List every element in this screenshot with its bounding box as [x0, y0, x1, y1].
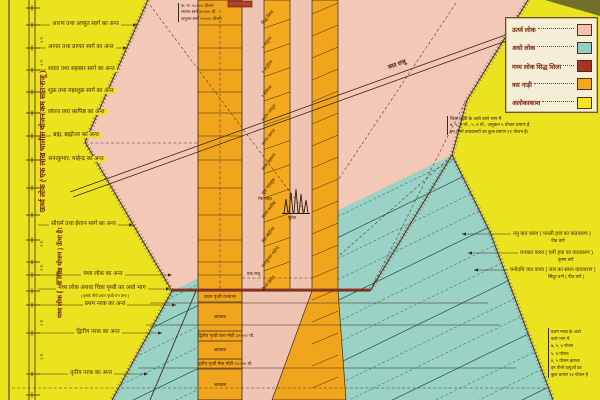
note-line: ७, ५, ४ योजन — [551, 342, 600, 349]
lower-box-label: प्रथम पृथ्वी रत्नप्रभा — [198, 294, 242, 301]
left-callout-label: लांतव तथा कापिष्ठ का अन्त — [46, 109, 106, 116]
rajju-unit-label: १ रा. — [39, 102, 46, 109]
legend-box: ऊर्ध्व लोकअधो लोकमध्य लोक सिद्ध शिलात्रस… — [505, 17, 598, 113]
middle-world-line — [172, 289, 370, 291]
left-callout-text: मध्य लोक का अन्त — [81, 271, 124, 277]
note-line: कुल प्रमाण १३ योजन है — [551, 371, 600, 378]
legend-dots — [563, 65, 574, 66]
legend-item: ऊर्ध्व लोक — [512, 23, 592, 36]
legend-dots — [538, 28, 574, 29]
meru-label: मेरु पर्वत — [258, 196, 272, 201]
note-line: अनुत्तर स्वर्ग ५०००० योजन — [181, 16, 271, 22]
rajju-unit-label: १ रा. — [39, 240, 46, 247]
legend-dots — [534, 83, 574, 84]
legend-dots — [542, 101, 574, 102]
rajju-unit-label: १ रा. — [39, 319, 46, 326]
left-callout-label: सौधर्म तथा ईशान स्वर्ग का अन्त — [46, 221, 121, 228]
left-callout-text: आरण तथा अच्युत स्वर्ग का अन्त — [50, 21, 121, 27]
left-callout-label: शतार तथा सहस्रार स्वर्ग का अन्त — [46, 66, 106, 73]
left-callout-label: शुक्र तथा महाशुक्र स्वर्ग का अन्त — [46, 88, 106, 95]
sumeru-label: सुमेरु — [288, 215, 296, 220]
note-line: इन तीनों वायुओं का — [551, 364, 600, 371]
right-callout-sub: सिंदूर वर्ण ( पीत वर्ण ) — [548, 274, 584, 281]
left-callout-label: तृतीय नरक का अन्त — [46, 370, 136, 377]
rajju-unit-label: १ रा. — [39, 264, 46, 271]
one-rajju-label: एक राजू — [246, 271, 261, 276]
left-callout-label: सनत्कुमार, माहेन्द्र का अन्त — [46, 156, 106, 163]
legend-dots — [537, 46, 574, 47]
legend-item: अधो लोक — [512, 41, 592, 54]
three-loka-cosmology-chart: ऊर्ध्व लोकअधो लोकमध्य लोक सिद्ध शिलात्रस… — [0, 0, 600, 400]
legend-item-label: ऊर्ध्व लोक — [512, 25, 536, 34]
left-callout-text: शतार तथा सहस्रार स्वर्ग का अन्त — [46, 66, 117, 72]
right-callout-label: घनवात वलय ( घनी हवा का वातावरण ) — [520, 250, 593, 257]
legend-item-label: मध्य लोक सिद्ध शिला — [512, 62, 561, 71]
note-line: इन तीनों वातवलयों का कुल प्रमाण ११ योजन … — [450, 129, 590, 135]
left-callout-text: तृतीय नरक का अन्त — [68, 370, 114, 376]
lower-box-label: आकाश — [198, 382, 242, 389]
rajju-unit-label: १ रा. — [39, 59, 46, 66]
right-callout-sub: कृष्ण वर्ण — [558, 257, 573, 264]
legend-item-label: त्रस नाड़ी — [512, 80, 532, 89]
right-callout-label: तनु वात वलय ( पतली हवा का वातावरण ) — [513, 231, 591, 238]
rajju-unit-label: १ रा. — [39, 36, 46, 43]
left-callout-text: सनत्कुमार, माहेन्द्र का अन्त — [46, 156, 105, 162]
legend-color-swatch — [577, 97, 592, 109]
note-line: वाले भाग में — [551, 335, 600, 342]
legend-item-label: अलोकाकाश — [512, 98, 540, 107]
rajju-unit-label: १ रा. — [39, 148, 46, 155]
first-naraka-note: प्रथम नरक के अधो वाले भाग में ७, ५, ४ यो… — [548, 328, 600, 378]
legend-item-label: अधो लोक — [512, 43, 535, 52]
legend-color-swatch — [577, 78, 592, 90]
left-callout-text: शुक्र तथा महाशुक्र स्वर्ग का अन्त — [46, 88, 116, 94]
left-callout-text: आनत तथा प्राणत स्वर्ग का अन्त — [46, 44, 116, 50]
left-callout-text: ब्रह्म, ब्रह्मोत्तर का अन्त — [51, 132, 101, 138]
legend-color-swatch — [577, 60, 592, 72]
rajju-unit-label: १ रा. — [39, 206, 46, 213]
lower-box-label: द्वितीय पृथ्वी वंशा मोटी ३२००० यो. — [198, 333, 242, 340]
lower-box-label: आकाश — [198, 347, 242, 354]
lower-box-label: तृतीय पृथ्वी मेघा मोटी २८००० यो. — [198, 361, 242, 368]
left-callout-text: मध्य लोक अथवा चित्रा पृथ्वी का अधो भाग — [56, 285, 147, 291]
legend-color-swatch — [577, 42, 592, 54]
chitra-note: चित्रा पृथ्वी के अधो वाले भाग में ७, ५, … — [447, 116, 590, 135]
right-callout-label: घनोदधि वात वलय ( जल का सघन वातावरण ) — [510, 267, 596, 274]
rajju-unit-label: १ रा. — [39, 174, 46, 181]
left-callout-label: प्रथम नरक का अन्त — [46, 301, 164, 308]
left-callout-label: आनत तथा प्राणत स्वर्ग का अन्त — [46, 44, 115, 51]
rajju-unit-label: १ रा. — [39, 81, 46, 88]
note-line: ४, ५ योजन क्रमशः — [551, 357, 600, 364]
legend-color-swatch — [577, 24, 592, 36]
left-callout-label: मध्य लोक अथवा चित्रा पृथ्वी का अधो भाग — [46, 285, 158, 292]
left-callout-label: मध्य लोक का अन्त — [46, 271, 160, 278]
left-callout-label: ब्रह्म, ब्रह्मोत्तर का अन्त — [46, 132, 106, 139]
left-callout-label: आरण तथा अच्युत स्वर्ग का अन्त — [46, 21, 125, 28]
legend-item: अलोकाकाश — [512, 96, 592, 109]
left-callout-sub: ( इसके नीचे प्रथम पृथ्वी रत्न प्रभा ) — [52, 293, 158, 300]
left-callout-text: प्रथम नरक का अन्त — [83, 301, 128, 307]
rajju-unit-label: १ रा. — [39, 124, 46, 131]
rajju-unit-label: १ रा. — [39, 353, 46, 360]
left-callout-text: लांतव तथा कापिष्ठ का अन्त — [46, 109, 107, 115]
note-line: प्रथम नरक के अधो — [551, 328, 600, 335]
note-line: ५, ४ योजन — [551, 350, 600, 357]
right-callout-sub: पीत वर्ण — [551, 238, 565, 245]
left-callout-text: सौधर्म तथा ईशान स्वर्ग का अन्त — [49, 221, 118, 227]
left-callout-label: द्वितीय नरक का अन्त — [46, 329, 150, 336]
legend-item: त्रस नाड़ी — [512, 78, 592, 91]
top-bracket-note: ऊ. रा. ५०००० योजन सप्तम स्वर्ग ६०००० यो.… — [178, 3, 271, 22]
lower-box-label: आकाश — [198, 314, 242, 321]
legend-item: मध्य लोक सिद्ध शिला — [512, 60, 592, 73]
left-callout-text: द्वितीय नरक का अन्त — [74, 329, 121, 335]
